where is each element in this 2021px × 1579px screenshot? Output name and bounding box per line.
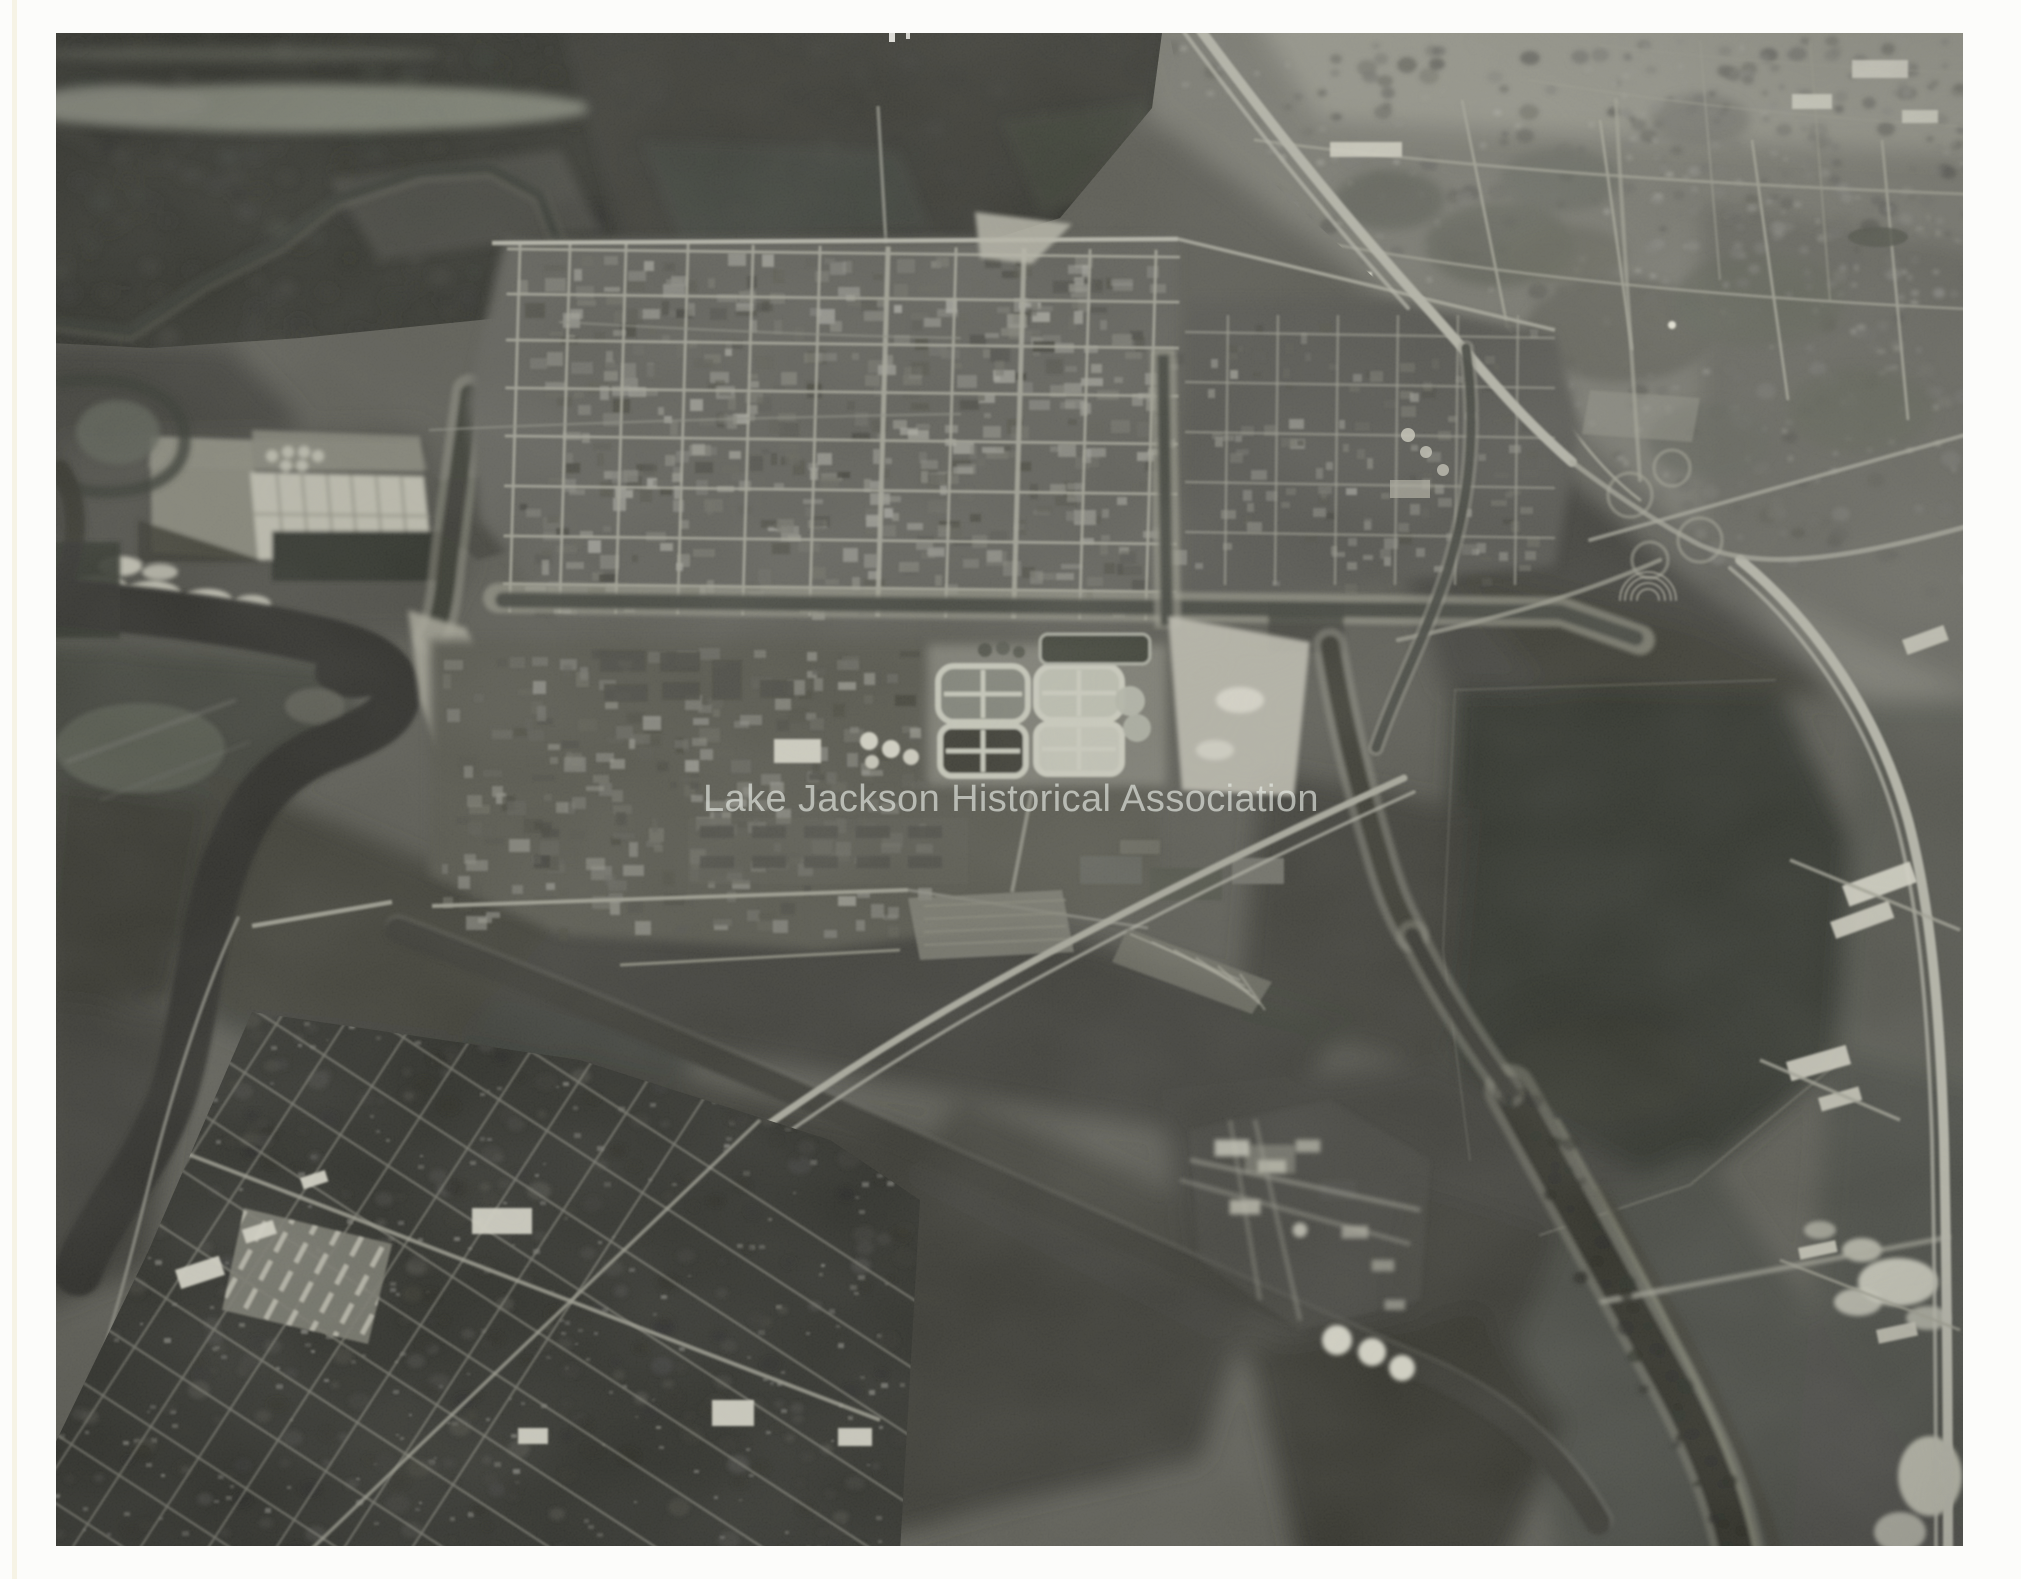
svg-text:Lake Jackson Historical Associ: Lake Jackson Historical Association xyxy=(703,778,1319,820)
